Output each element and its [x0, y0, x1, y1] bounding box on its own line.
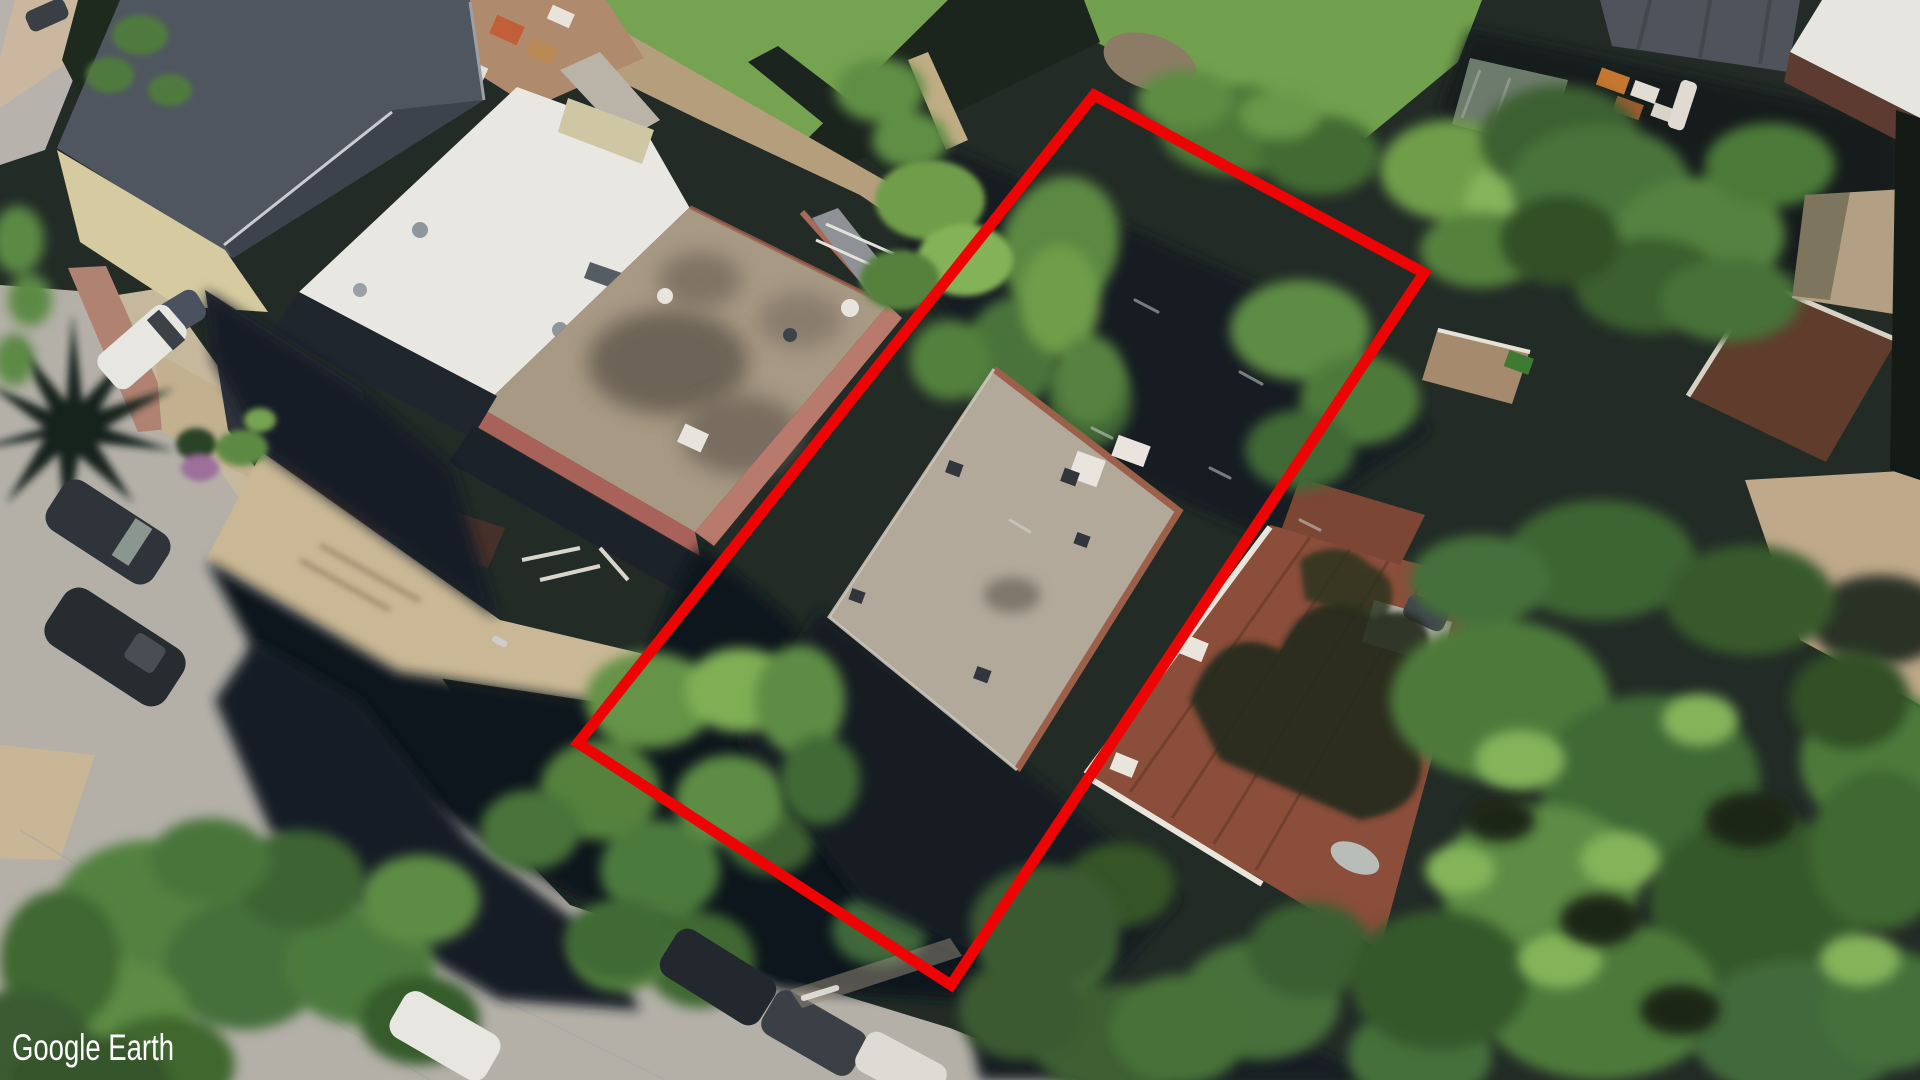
svg-text:Google Earth: Google Earth [12, 1027, 174, 1068]
